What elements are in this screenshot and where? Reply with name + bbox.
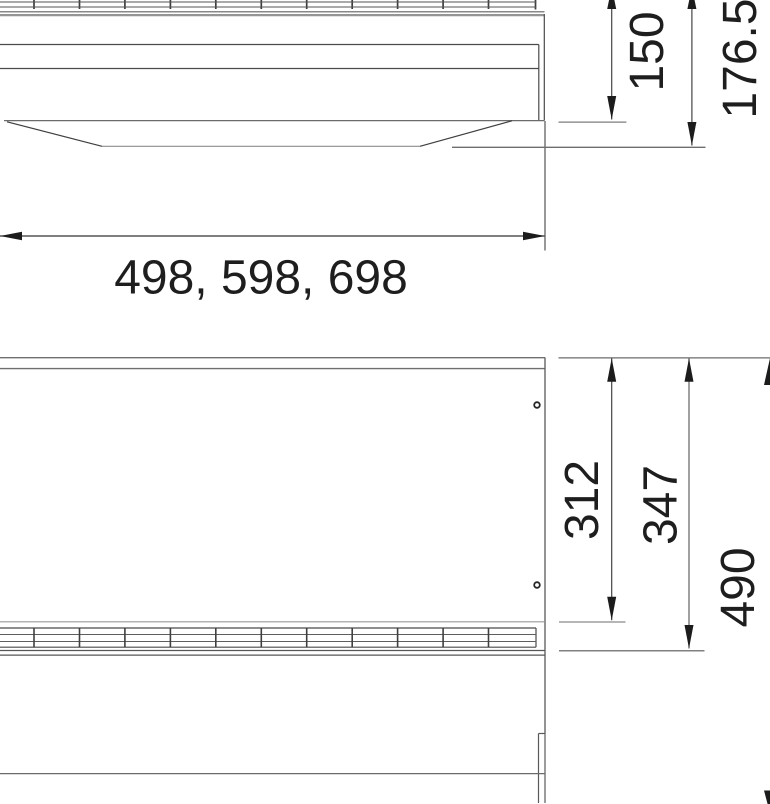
svg-text:176.5: 176.5 bbox=[714, 0, 767, 119]
svg-text:312: 312 bbox=[556, 460, 609, 540]
svg-text:150: 150 bbox=[621, 11, 674, 91]
svg-text:347: 347 bbox=[635, 465, 688, 545]
svg-text:490: 490 bbox=[712, 547, 765, 627]
svg-text:498, 598, 698: 498, 598, 698 bbox=[114, 252, 408, 305]
